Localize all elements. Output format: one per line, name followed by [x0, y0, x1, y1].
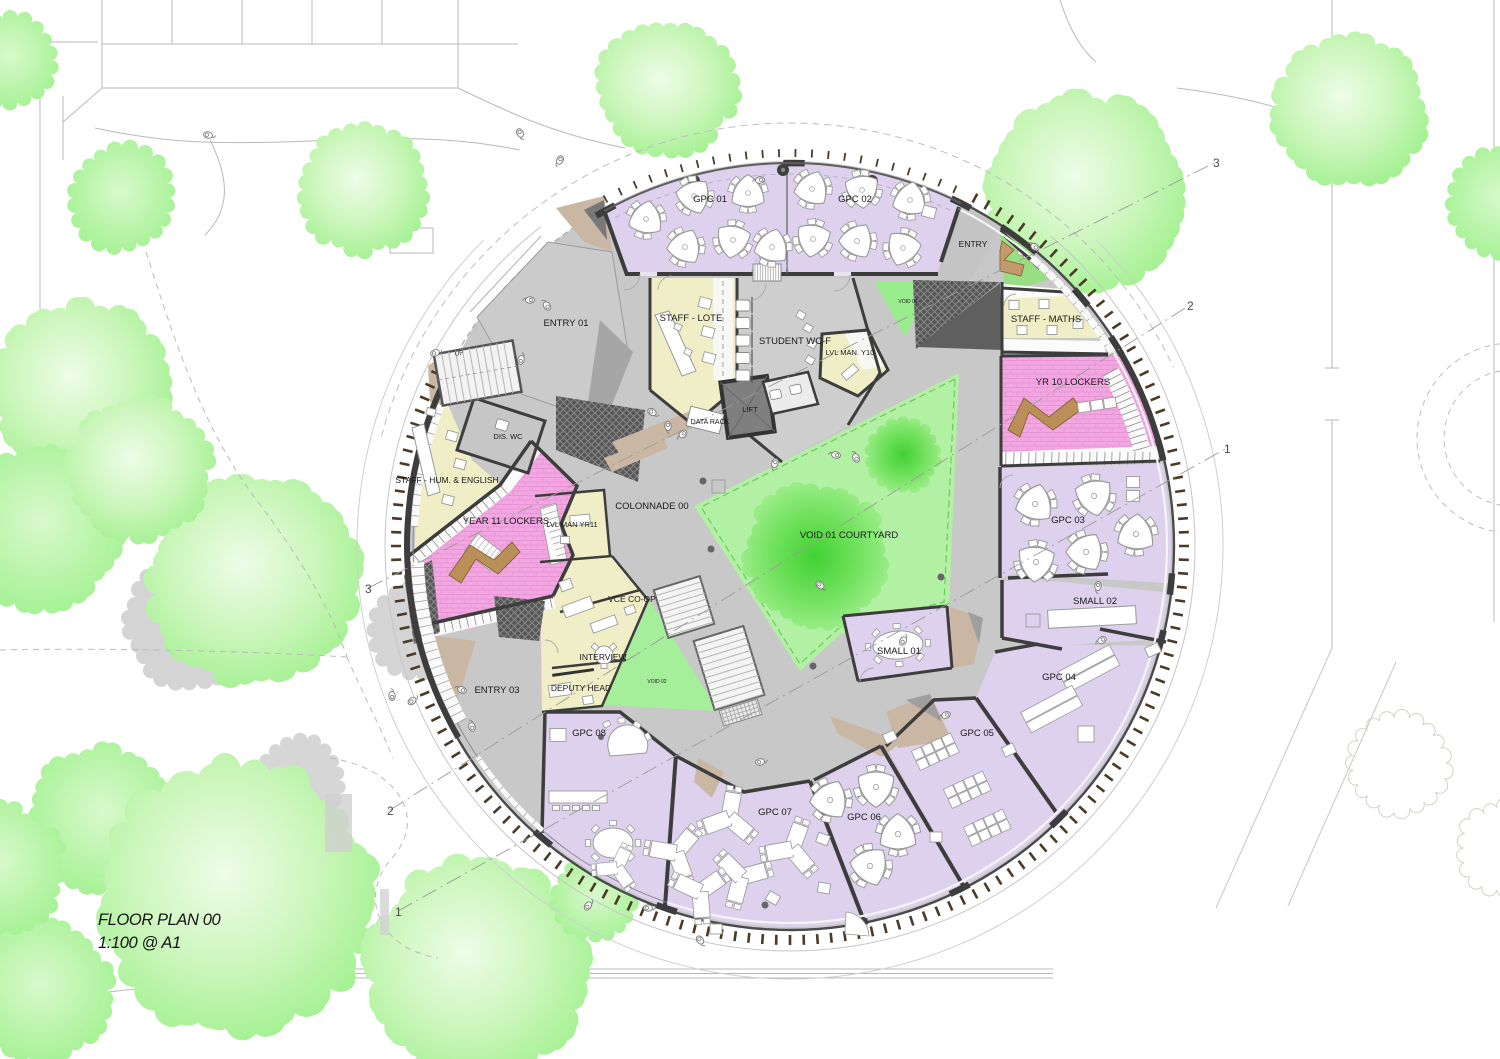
svg-text:2: 2	[387, 804, 394, 818]
svg-text:VOID 02: VOID 02	[647, 679, 666, 685]
svg-text:SMALL 02: SMALL 02	[1073, 596, 1117, 607]
svg-text:COLONNADE 00: COLONNADE 00	[615, 501, 688, 512]
svg-text:3: 3	[365, 582, 372, 596]
svg-text:1: 1	[395, 905, 402, 919]
svg-text:YR 10 LOCKERS: YR 10 LOCKERS	[1036, 377, 1110, 388]
svg-text:GPC 05: GPC 05	[960, 728, 994, 739]
svg-text:VOID 01 COURTYARD: VOID 01 COURTYARD	[800, 530, 899, 541]
svg-text:LVL MAN. Y10: LVL MAN. Y10	[826, 348, 875, 357]
svg-text:DATA RACK: DATA RACK	[691, 419, 730, 426]
svg-text:GPC 01: GPC 01	[693, 194, 727, 205]
svg-text:DEPUTY HEAD: DEPUTY HEAD	[551, 683, 611, 693]
svg-text:SMALL 01: SMALL 01	[877, 646, 921, 657]
svg-text:GPC 07: GPC 07	[758, 807, 792, 818]
svg-text:LVL MAN YR11: LVL MAN YR11	[546, 520, 597, 529]
svg-text:1:100 @ A1: 1:100 @ A1	[98, 934, 181, 952]
svg-text:DIS. WC: DIS. WC	[493, 432, 523, 441]
svg-text:INTERVIEW: INTERVIEW	[579, 652, 626, 662]
svg-text:STUDENT WC-F: STUDENT WC-F	[759, 336, 831, 347]
svg-text:LIFT: LIFT	[742, 405, 758, 414]
svg-text:GPC 03: GPC 03	[1051, 515, 1085, 526]
svg-text:STAFF - LOTE: STAFF - LOTE	[660, 313, 723, 324]
svg-text:VOID 04: VOID 04	[898, 299, 917, 305]
svg-text:ENTRY 01: ENTRY 01	[543, 318, 588, 329]
svg-text:GPC 02: GPC 02	[838, 194, 872, 205]
svg-text:3: 3	[1213, 156, 1220, 170]
svg-text:2: 2	[1187, 299, 1194, 313]
svg-text:GPC 04: GPC 04	[1042, 672, 1076, 683]
svg-text:GPC 08: GPC 08	[572, 728, 606, 739]
svg-text:GPC 06: GPC 06	[847, 812, 881, 823]
svg-text:STAFF - MATHS: STAFF - MATHS	[1011, 314, 1081, 325]
svg-text:1: 1	[1224, 442, 1231, 456]
svg-text:VCE CO-OP: VCE CO-OP	[608, 594, 656, 604]
svg-text:ENTRY: ENTRY	[959, 239, 988, 249]
svg-text:FLOOR PLAN 00: FLOOR PLAN 00	[98, 911, 221, 929]
svg-text:ENTRY 03: ENTRY 03	[474, 685, 519, 696]
svg-text:YEAR 11 LOCKERS: YEAR 11 LOCKERS	[463, 516, 549, 527]
svg-text:STAFF - HUM. & ENGLISH: STAFF - HUM. & ENGLISH	[395, 475, 498, 485]
